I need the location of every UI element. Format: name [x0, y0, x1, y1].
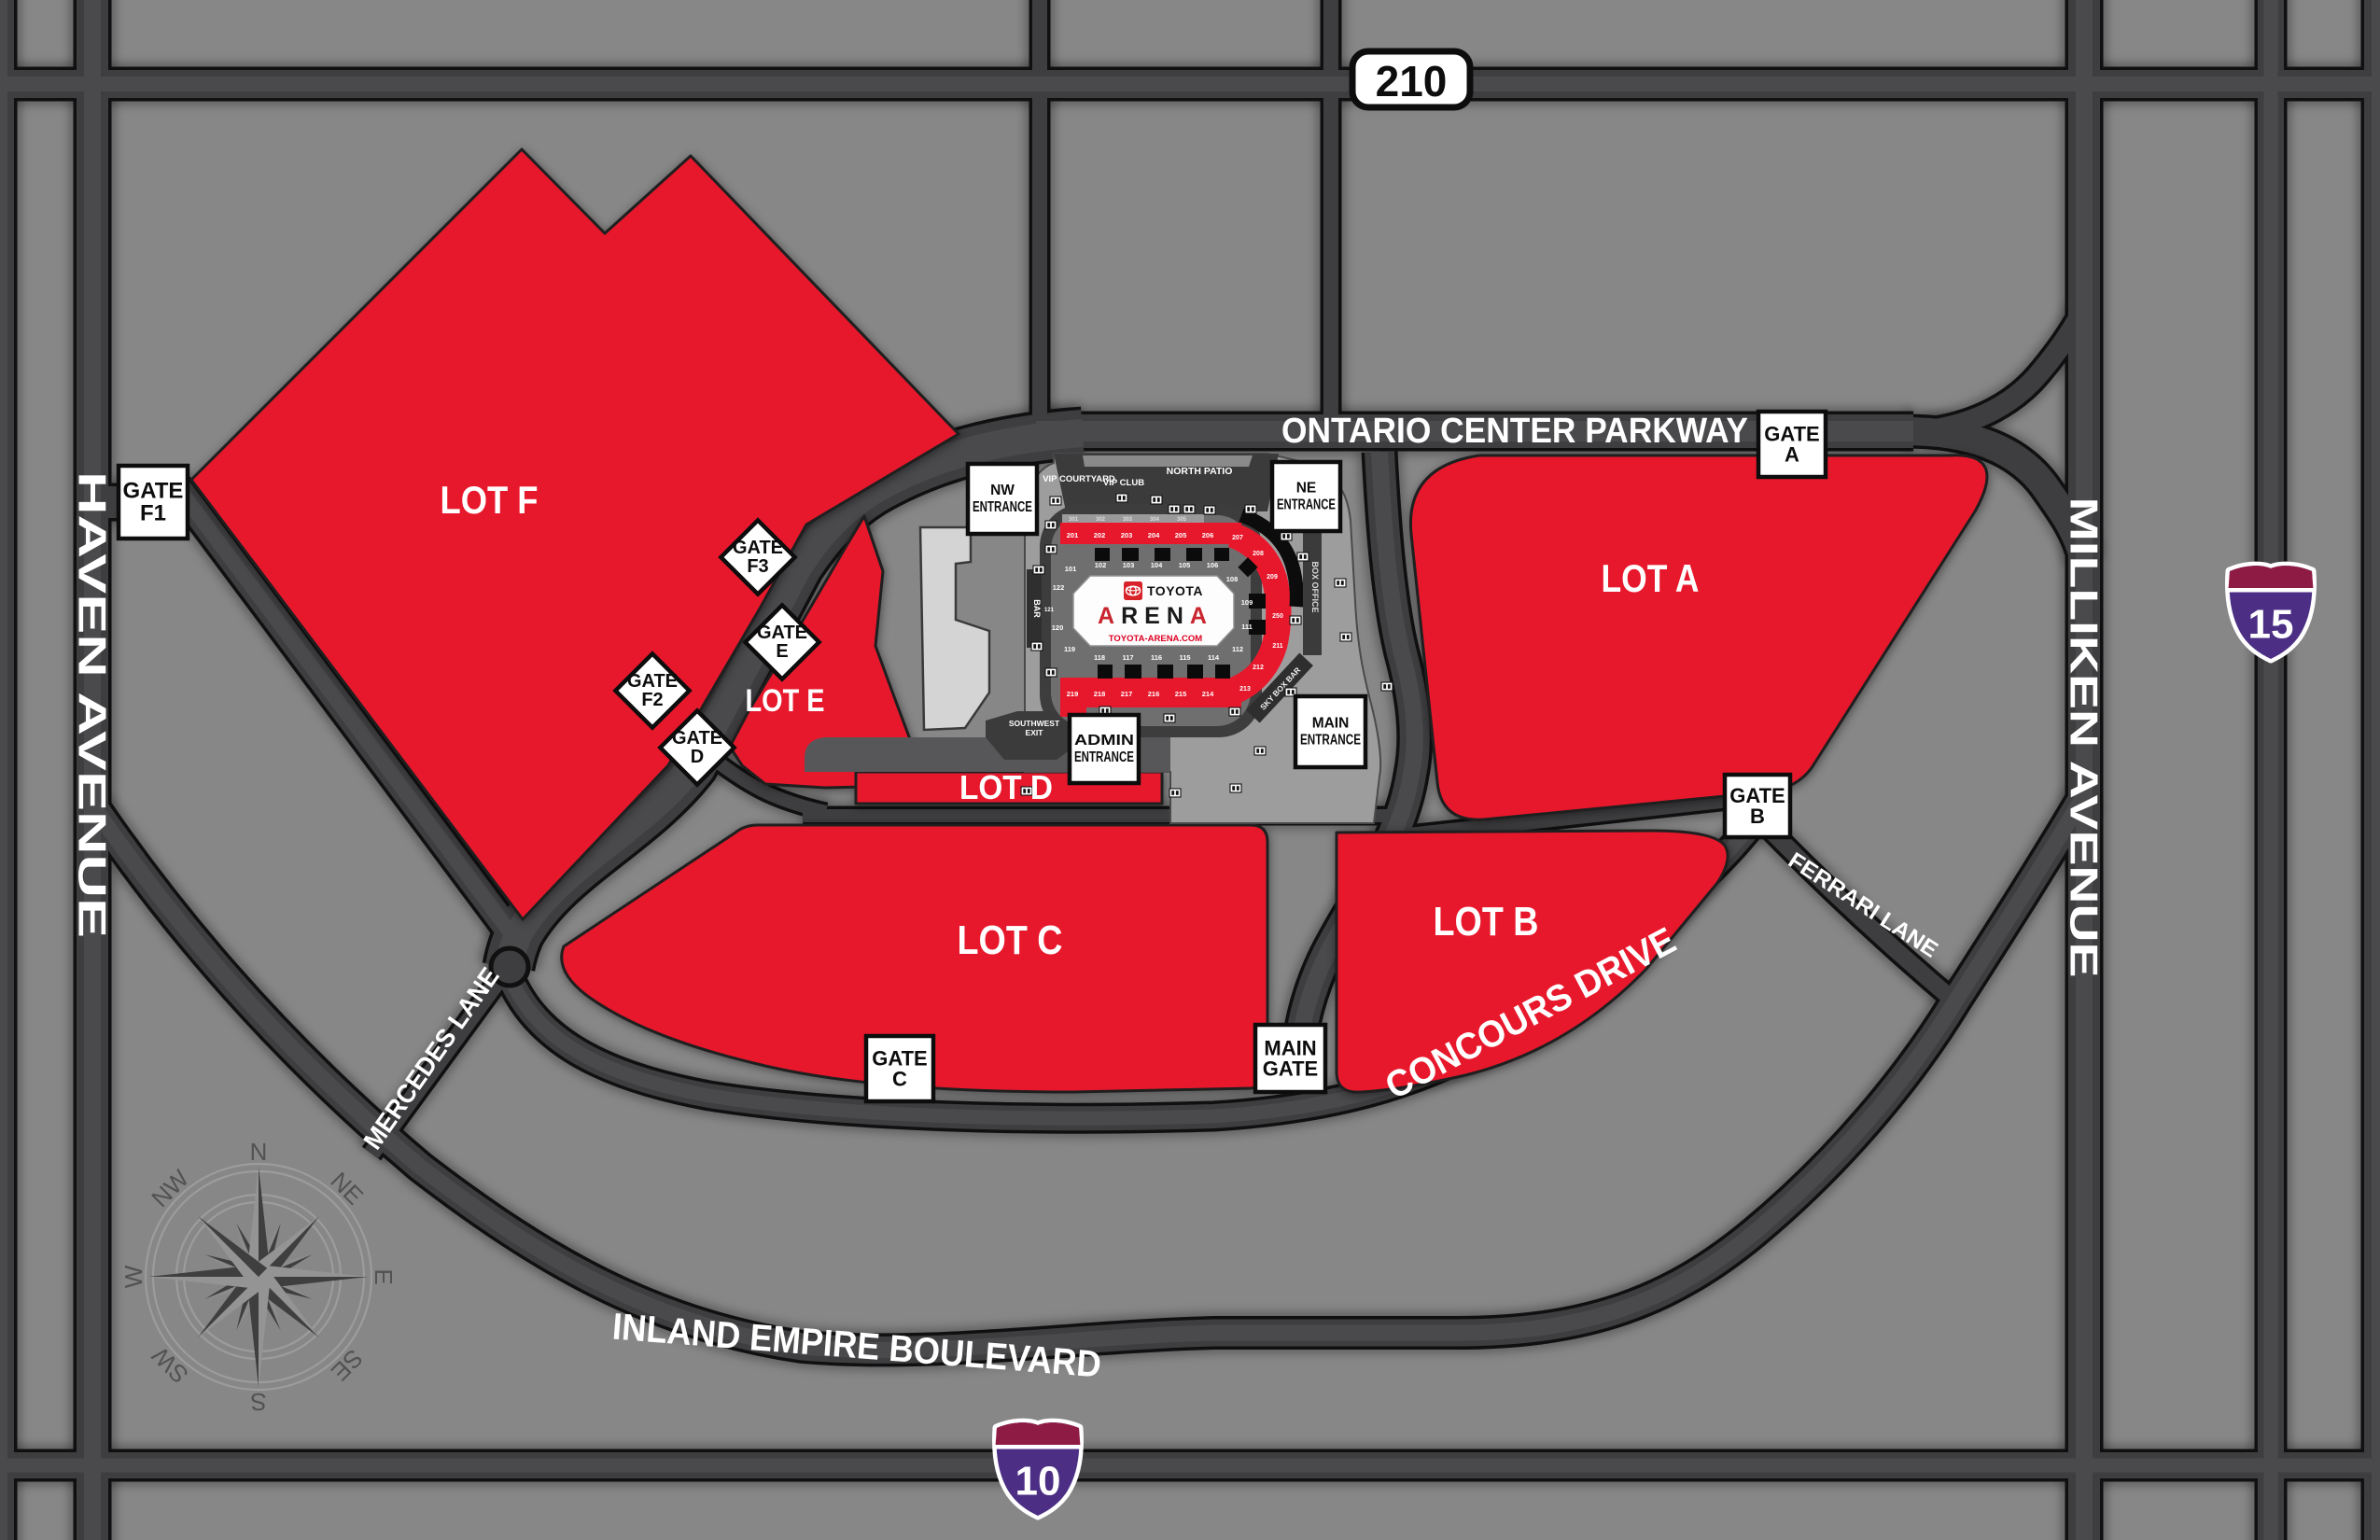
svg-text:102: 102	[1095, 561, 1107, 569]
svg-text:GATE: GATE	[672, 728, 722, 749]
svg-text:204: 204	[1148, 531, 1160, 539]
svg-text:121: 121	[1044, 608, 1055, 613]
svg-text:215: 215	[1175, 690, 1187, 698]
svg-text:D: D	[691, 747, 704, 767]
svg-text:114: 114	[1208, 653, 1220, 662]
svg-text:203: 203	[1121, 531, 1133, 539]
svg-text:LOT E: LOT E	[746, 683, 825, 719]
svg-text:TOYOTA-ARENA.COM: TOYOTA-ARENA.COM	[1109, 634, 1203, 644]
svg-text:209: 209	[1267, 574, 1278, 581]
svg-text:201: 201	[1067, 531, 1079, 539]
svg-text:122: 122	[1053, 583, 1065, 592]
svg-text:103: 103	[1123, 561, 1135, 569]
svg-text:304: 304	[1150, 517, 1160, 523]
svg-text:303: 303	[1123, 517, 1133, 523]
svg-text:116: 116	[1151, 653, 1162, 662]
svg-text:MAIN: MAIN	[1312, 716, 1350, 732]
svg-text:117: 117	[1122, 653, 1133, 662]
svg-text:101: 101	[1065, 565, 1077, 573]
svg-text:ARENA: ARENA	[1098, 603, 1213, 629]
svg-text:E: E	[776, 641, 788, 662]
svg-text:VIP CLUB: VIP CLUB	[1103, 478, 1144, 488]
svg-text:213: 213	[1239, 686, 1251, 693]
svg-text:15: 15	[2248, 602, 2294, 648]
svg-text:ENTRANCE: ENTRANCE	[1074, 749, 1134, 765]
svg-text:207: 207	[1232, 535, 1243, 541]
svg-text:202: 202	[1094, 531, 1106, 539]
svg-text:108: 108	[1226, 575, 1239, 583]
svg-text:B: B	[1750, 805, 1765, 828]
svg-text:216: 216	[1148, 690, 1160, 698]
svg-text:119: 119	[1064, 645, 1075, 653]
svg-text:ENTRANCE: ENTRANCE	[973, 499, 1032, 515]
svg-text:10: 10	[1015, 1459, 1061, 1505]
svg-text:211: 211	[1272, 643, 1282, 650]
svg-text:105: 105	[1179, 561, 1191, 569]
svg-text:N: N	[250, 1138, 268, 1166]
svg-text:F2: F2	[641, 690, 663, 710]
svg-text:ENTRANCE: ENTRANCE	[1300, 733, 1361, 749]
svg-text:F3: F3	[747, 556, 768, 577]
svg-text:115: 115	[1179, 653, 1190, 662]
svg-text:BAR: BAR	[1032, 599, 1042, 618]
svg-text:210: 210	[1376, 57, 1448, 105]
svg-text:GATE: GATE	[733, 538, 783, 558]
svg-text:219: 219	[1067, 690, 1079, 698]
svg-text:LOT B: LOT B	[1434, 899, 1539, 945]
svg-text:MILLIKEN AVENUE: MILLIKEN AVENUE	[2063, 497, 2107, 978]
svg-text:250: 250	[1272, 613, 1283, 620]
svg-text:GATE: GATE	[757, 623, 807, 643]
svg-text:109: 109	[1241, 598, 1253, 607]
svg-text:E: E	[370, 1268, 398, 1284]
svg-text:206: 206	[1202, 531, 1214, 539]
svg-text:GATE: GATE	[1263, 1057, 1318, 1081]
svg-text:BOX OFFICE: BOX OFFICE	[1310, 561, 1320, 612]
svg-text:106: 106	[1207, 561, 1219, 569]
svg-text:F1: F1	[140, 501, 166, 526]
svg-text:120: 120	[1052, 623, 1064, 632]
svg-text:GATE: GATE	[627, 671, 678, 692]
svg-text:LOT F: LOT F	[441, 478, 539, 522]
svg-text:S: S	[250, 1388, 266, 1416]
svg-text:LOT C: LOT C	[958, 917, 1063, 963]
svg-text:214: 214	[1202, 690, 1214, 698]
svg-text:A: A	[1785, 443, 1799, 467]
svg-text:HAVEN AVENUE: HAVEN AVENUE	[71, 471, 115, 938]
svg-text:ONTARIO CENTER PARKWAY: ONTARIO CENTER PARKWAY	[1281, 412, 1748, 451]
svg-text:218: 218	[1094, 690, 1106, 698]
svg-text:ENTRANCE: ENTRANCE	[1277, 497, 1336, 513]
svg-text:208: 208	[1253, 551, 1264, 557]
svg-text:112: 112	[1232, 645, 1243, 653]
svg-text:LOT A: LOT A	[1602, 556, 1700, 600]
svg-text:NW: NW	[990, 483, 1015, 498]
svg-text:NE: NE	[1296, 481, 1317, 497]
svg-text:TOYOTA: TOYOTA	[1147, 583, 1203, 598]
svg-text:SOUTHWEST: SOUTHWEST	[1009, 719, 1060, 728]
svg-text:305: 305	[1177, 517, 1187, 523]
svg-text:104: 104	[1151, 561, 1163, 569]
svg-text:NORTH PATIO: NORTH PATIO	[1167, 466, 1233, 477]
svg-text:205: 205	[1175, 531, 1187, 539]
svg-text:212: 212	[1253, 665, 1264, 671]
svg-text:217: 217	[1121, 690, 1133, 698]
svg-text:301: 301	[1069, 517, 1079, 523]
svg-text:111: 111	[1241, 623, 1253, 631]
svg-text:302: 302	[1096, 517, 1106, 523]
svg-text:118: 118	[1094, 653, 1105, 662]
svg-text:GATE: GATE	[123, 479, 184, 504]
svg-text:LOT D: LOT D	[959, 768, 1053, 806]
svg-text:EXIT: EXIT	[1026, 728, 1044, 737]
svg-text:ADMIN: ADMIN	[1074, 733, 1134, 749]
svg-text:W: W	[119, 1265, 147, 1288]
svg-text:C: C	[892, 1068, 907, 1091]
